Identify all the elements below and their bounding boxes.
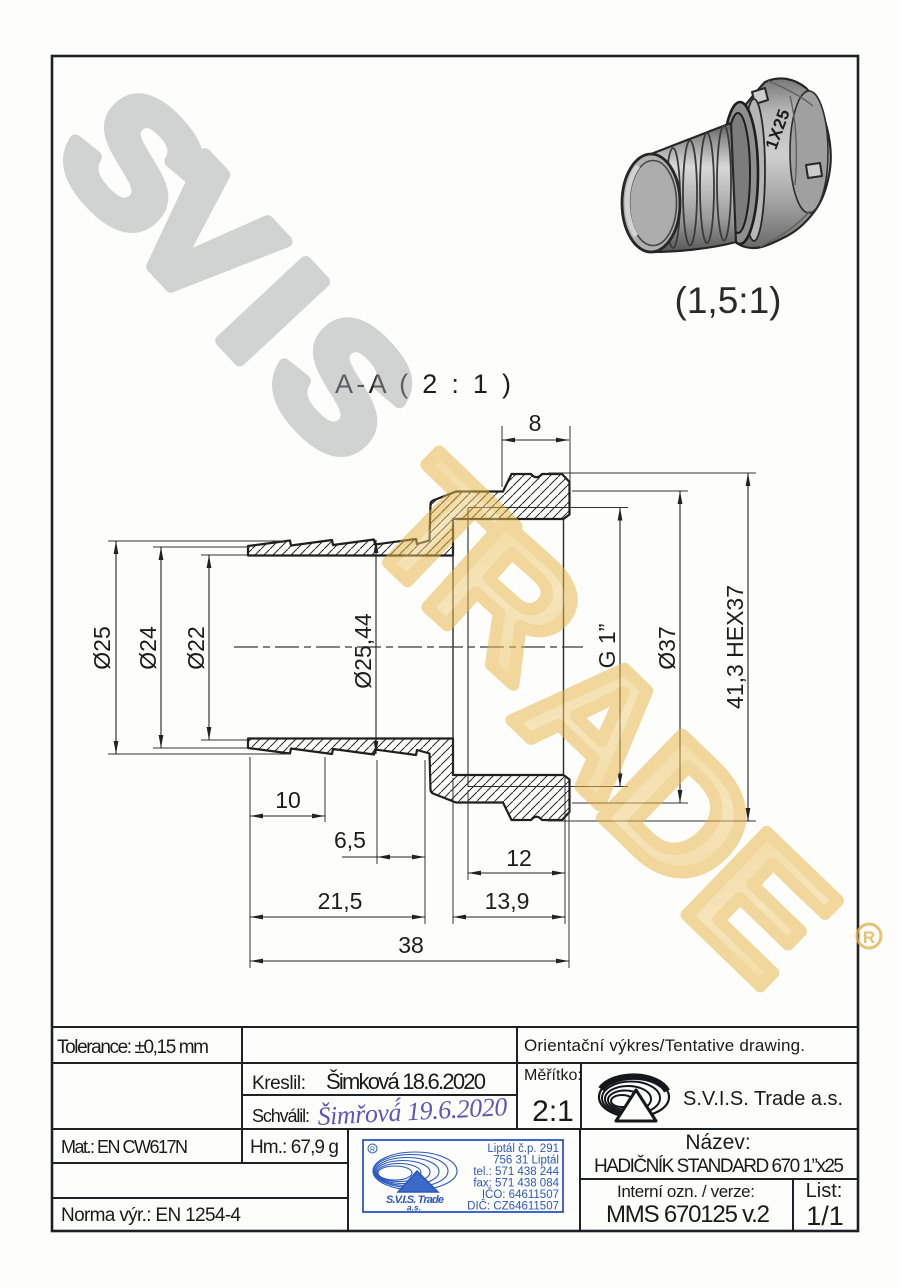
- svg-text:tel.: 571 438 244: tel.: 571 438 244: [473, 1166, 559, 1178]
- svg-text:Ø25: Ø25: [89, 626, 115, 669]
- svg-text:Šimková 18.6.2020: Šimková 18.6.2020: [326, 1069, 486, 1094]
- svg-text:21,5: 21,5: [318, 888, 363, 914]
- svg-text:a.s.: a.s.: [407, 1203, 421, 1213]
- svg-text:Schválil:: Schválil:: [252, 1106, 310, 1126]
- svg-text:Měřítko:: Měřítko:: [524, 1067, 582, 1084]
- svg-text:Tolerance: ±0,15 mm: Tolerance: ±0,15 mm: [57, 1037, 209, 1058]
- svg-text:Mat.: EN CW617N: Mat.: EN CW617N: [61, 1137, 188, 1157]
- svg-text:13,9: 13,9: [485, 888, 530, 914]
- svg-text:10: 10: [275, 787, 301, 813]
- svg-text:Norma výr.: EN 1254-4: Norma výr.: EN 1254-4: [61, 1205, 241, 1226]
- svg-text:DIČ: CZ64611507: DIČ: CZ64611507: [467, 1200, 559, 1213]
- svg-text:41,3 HEX37: 41,3 HEX37: [722, 585, 748, 709]
- svg-text:1/1: 1/1: [806, 1201, 844, 1231]
- svg-text:HADIČNÍK STANDARD 670 1”x25: HADIČNÍK STANDARD 670 1”x25: [594, 1155, 844, 1177]
- svg-text:Orientační výkres/Tentative dr: Orientační výkres/Tentative drawing.: [524, 1036, 805, 1055]
- svg-text:Interní ozn. / verze:: Interní ozn. / verze:: [617, 1182, 755, 1201]
- svg-text:List:: List:: [806, 1180, 843, 1202]
- svg-text:2:1: 2:1: [532, 1095, 574, 1128]
- svg-text:Ø22: Ø22: [183, 626, 209, 669]
- svg-text:fax: 571 438 084: fax: 571 438 084: [473, 1178, 559, 1190]
- svg-text:38: 38: [398, 932, 424, 958]
- svg-text:MMS 670125 v.2: MMS 670125 v.2: [606, 1201, 770, 1228]
- svg-text:Hm.: 67,9 g: Hm.: 67,9 g: [250, 1137, 339, 1158]
- svg-text:756 31 Liptál: 756 31 Liptál: [493, 1155, 559, 1167]
- svg-text:6,5: 6,5: [334, 827, 366, 853]
- svg-text:Ø24: Ø24: [135, 626, 161, 670]
- svg-text:8: 8: [529, 410, 542, 436]
- svg-text:S.V.I.S. Trade a.s.: S.V.I.S. Trade a.s.: [683, 1088, 843, 1110]
- svg-text:IČO: 64611507: IČO: 64611507: [482, 1188, 559, 1201]
- svg-text:Ø25,44: Ø25,44: [350, 613, 376, 689]
- svg-text:12: 12: [506, 845, 532, 871]
- svg-text:R: R: [863, 928, 875, 947]
- svg-text:R: R: [370, 1147, 375, 1154]
- svg-text:Kreslil:: Kreslil:: [252, 1073, 306, 1094]
- svg-text:Název:: Název:: [685, 1131, 750, 1154]
- svg-text:Liptál č.p. 291: Liptál č.p. 291: [487, 1143, 559, 1155]
- svg-text:(1,5:1): (1,5:1): [675, 280, 782, 321]
